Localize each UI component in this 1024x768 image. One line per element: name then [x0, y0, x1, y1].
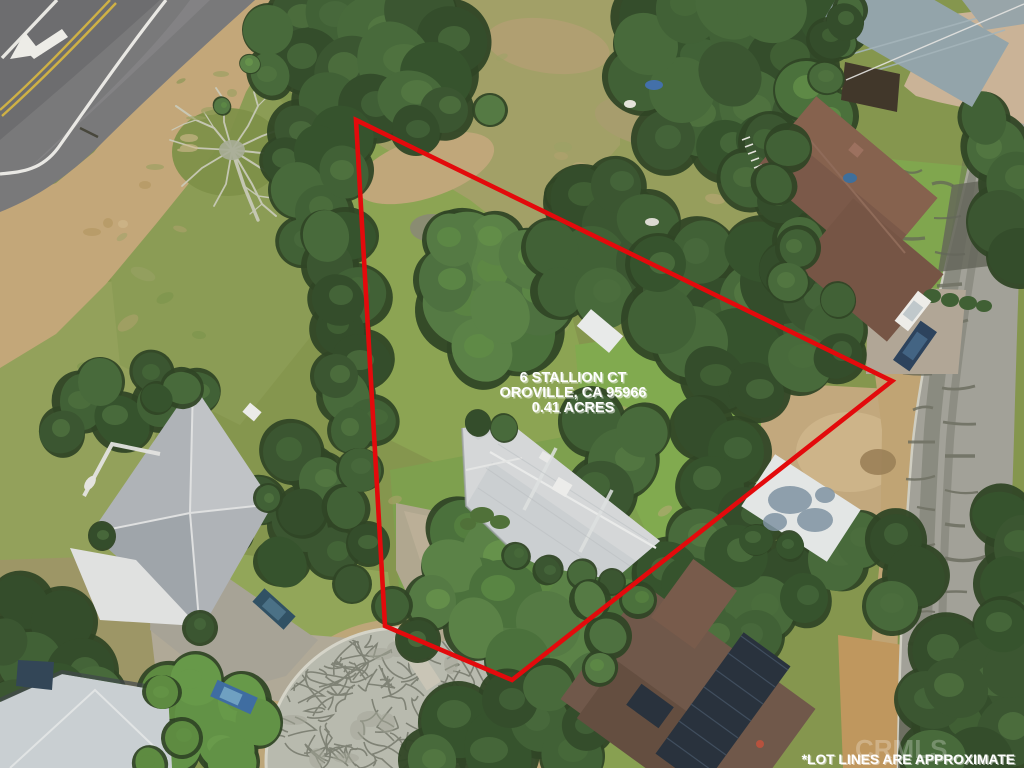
svg-text:0.41 ACRES: 0.41 ACRES: [532, 400, 615, 416]
svg-text:6 STALLION CT: 6 STALLION CT: [520, 370, 627, 386]
svg-text:*LOT LINES ARE APPROXIMATE: *LOT LINES ARE APPROXIMATE: [802, 752, 1015, 767]
svg-text:OROVILLE, CA 95966: OROVILLE, CA 95966: [500, 385, 647, 401]
